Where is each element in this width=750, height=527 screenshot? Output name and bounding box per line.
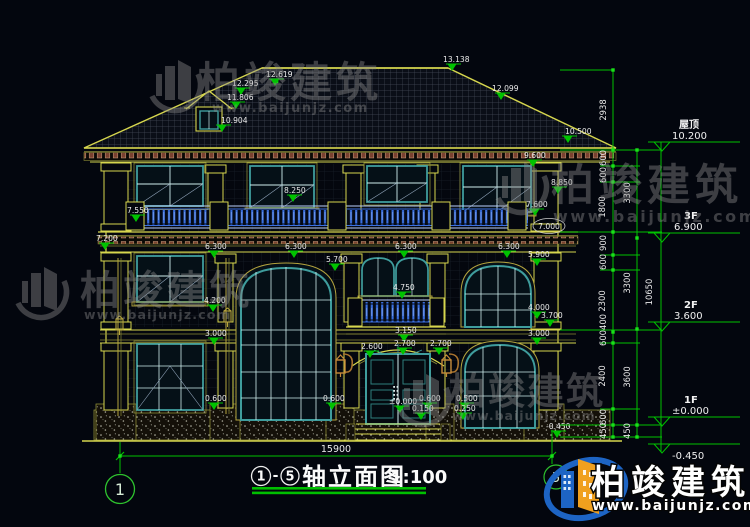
chain-dim: 600: [598, 254, 608, 270]
watermark-url: www.baijunjz.com: [212, 101, 369, 116]
dim-label: 13.138: [443, 55, 470, 64]
dim-label: 3.700: [541, 311, 563, 320]
watermark-brand: 柏竣建筑: [198, 58, 382, 107]
watermark: 柏竣建筑 www.baijunjz.com: [152, 58, 382, 116]
axis-number: 1: [115, 480, 125, 499]
level-value: -0.450: [672, 451, 704, 462]
dim-label: 8.250: [284, 186, 306, 195]
level-value: 3.600: [674, 311, 703, 322]
window: [245, 163, 319, 212]
dim-label: -0.450: [546, 422, 571, 431]
chain-dim: 3600: [622, 366, 632, 387]
chain-dim: 450: [622, 423, 632, 439]
chain-dim: 2300: [597, 290, 607, 311]
dim-label: 3.000: [205, 329, 227, 338]
dim-label: 12.099: [492, 84, 519, 93]
dim-label: 9.600: [524, 151, 546, 160]
chain-dim: 10650: [644, 279, 654, 306]
title-underline: [252, 487, 426, 490]
title-axis-to: 5: [285, 470, 294, 485]
dim-label: 3.000: [528, 329, 550, 338]
dim-label: 10.500: [565, 127, 592, 136]
level-value: 10.200: [672, 131, 707, 142]
dim-label: 7.550: [127, 206, 149, 215]
watermark-brand: 柏竣建筑: [449, 370, 605, 413]
chain-dim: 450: [598, 423, 608, 439]
logo-brand: 柏竣建筑: [591, 463, 750, 503]
chain-dim: 3300: [622, 272, 632, 293]
level-name: 屋顶: [679, 119, 699, 131]
window: [364, 163, 430, 205]
dim-label: 2.600: [361, 342, 383, 351]
arched-window-2f-right: [461, 262, 535, 327]
dim-label: 5.900: [528, 250, 550, 259]
logo-building-icon: [561, 471, 574, 508]
watermark-url: www.baijunjz.com: [452, 408, 596, 423]
watermark-url: www.baijunjz.com: [84, 307, 231, 322]
logo-url: www.baijunjz.com: [592, 498, 750, 514]
watermark-brand: 柏竣建筑: [551, 161, 743, 211]
chain-dim: 2938: [598, 99, 608, 120]
chain-dim: 900: [598, 235, 608, 251]
watermark-url: www.baijunjz.com: [553, 207, 750, 226]
level-value: ±0.000: [672, 406, 709, 417]
dim-label: 7.200: [96, 234, 118, 243]
title-underline: [252, 492, 426, 495]
chain-dim: 600: [598, 330, 608, 346]
dim-label: 10.904: [221, 116, 248, 125]
dim-label: 0.600: [205, 394, 227, 403]
brand-logo: 柏竣建筑 www.baijunjz.com: [540, 451, 750, 527]
level-name: 1F: [684, 395, 698, 406]
overall-width: 15900: [321, 444, 351, 455]
dim-label: 2.700: [394, 339, 416, 348]
dim-label: 6.300: [498, 242, 520, 251]
cad-elevation-screenshot: 13.138 12.099 12.619 12.295 11.806 10.90…: [0, 0, 750, 527]
dim-label: 6.300: [205, 242, 227, 251]
dim-label: 0.600: [323, 394, 345, 403]
elevation-drawing: 13.138 12.099 12.619 12.295 11.806 10.90…: [0, 0, 750, 527]
balustrade-3f: [126, 202, 528, 230]
drawing-scale: 1:100: [390, 467, 447, 488]
dim-label: 6.300: [395, 242, 417, 251]
level-name: 2F: [684, 300, 698, 311]
dim-label: 2.700: [430, 339, 452, 348]
title-separator: -: [273, 468, 279, 484]
dim-label: 3.150: [395, 326, 417, 335]
title-axis-from: 1: [256, 470, 265, 485]
watermark: 柏竣建筑 www.baijunjz.com: [18, 267, 252, 322]
dim-label: 6.300: [285, 242, 307, 251]
window: [134, 341, 206, 413]
title-block: 1 - 5 轴立面图 1:100: [252, 463, 448, 494]
chain-dim: 400: [598, 314, 608, 330]
dim-label: 4.750: [393, 283, 415, 292]
dim-label: 5.700: [326, 255, 348, 264]
